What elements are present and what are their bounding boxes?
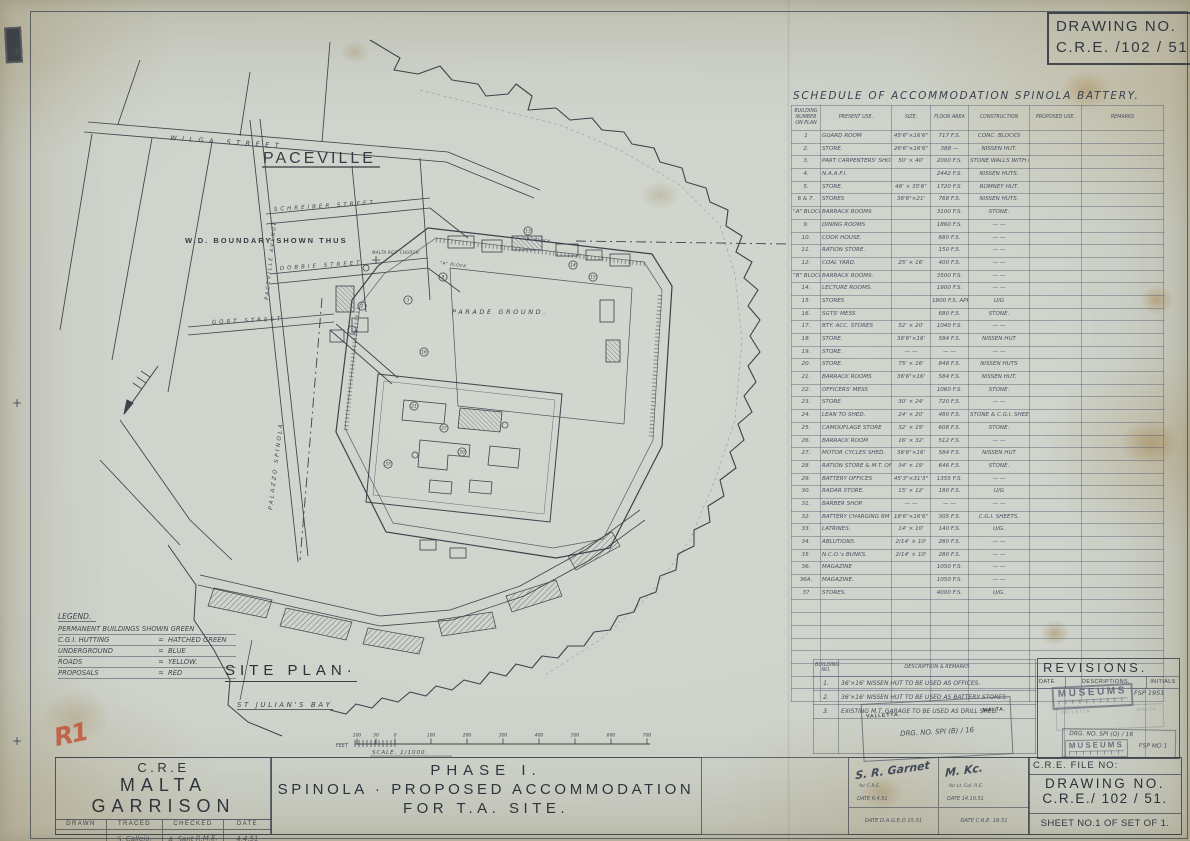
cell: OFFICERS' MESS: [821, 384, 892, 397]
table-row: 35.N.C.O.'s BUNKS.2/14' × 10'280 F.S.— —: [792, 549, 1164, 562]
cell: [1082, 232, 1164, 245]
cell: 3100 F.S.: [931, 207, 969, 220]
drawing-no-title-box: C.R.E. FILE NO: DRAWING NO. C.R.E./ 102 …: [1028, 757, 1182, 835]
table-row: 36A.MAGAZINE.1050 F.S.— —: [792, 575, 1164, 588]
cell: [1082, 169, 1164, 182]
cell: NISSEN HUT.: [969, 143, 1030, 156]
table-row: 14.LECTURE ROOMS.1900 F.S.— —: [792, 283, 1164, 296]
cell: 32' × 19': [892, 422, 931, 435]
cell: "B" BLOCK 13.: [792, 270, 821, 283]
cell: 305 F.S.: [931, 511, 969, 524]
svg-text:0: 0: [394, 733, 397, 739]
cell: [1082, 270, 1164, 283]
cell: 25' × 16': [892, 257, 931, 270]
cell: 14.: [792, 283, 821, 296]
schedule-title: SCHEDULE OF ACCOMMODATION SPINOLA BATTER…: [793, 90, 1163, 102]
stamp-malta: MALTA.: [1137, 706, 1159, 712]
cell: 1720 F.S.: [931, 181, 969, 194]
cell: STORES.: [821, 587, 892, 600]
cre-malta-garrison-box: C.R.E MALTA GARRISON DRAWN TRACEDS. Call…: [55, 757, 272, 835]
cell: 18.: [792, 334, 821, 347]
cell: 50' × 40': [892, 156, 931, 169]
table-row: 11.RATION STORE.150 F.S.— —: [792, 245, 1164, 258]
cell: BARRACK ROOMS: [821, 207, 892, 220]
cell: [1030, 448, 1082, 461]
cell: RATION STORE & M.T. OFF.: [821, 460, 892, 473]
cell: 9.: [792, 219, 821, 232]
cell: STORE.: [821, 359, 892, 372]
cell: — —: [969, 562, 1030, 575]
cell: BATTERY CHARGING RM: [821, 511, 892, 524]
table-row: 34.ABLUTIONS.2/14' × 10'280 F.S.— —: [792, 537, 1164, 550]
cell: NISSEN HUT: [969, 334, 1030, 347]
svg-text:14: 14: [570, 263, 576, 269]
cell: 646 F.S.: [931, 460, 969, 473]
svg-text:400: 400: [535, 733, 544, 739]
table-row: [792, 638, 1164, 651]
stamp-malta: MALTA.: [983, 706, 1007, 713]
cell: C.G.I. SHEETS.: [969, 511, 1030, 524]
cell: 1040 F.S.: [931, 321, 969, 334]
svg-text:1: 1: [351, 328, 354, 334]
cell: 2000 F.S.: [931, 156, 969, 169]
cell: 18'6"×16'6": [892, 511, 931, 524]
cell: STORE.: [821, 181, 892, 194]
cell: N.C.O.'s BUNKS.: [821, 549, 892, 562]
table-row: 15.STORES1800 F.S. APPROX.U/G: [792, 295, 1164, 308]
cell: NISSEN HUTS.: [969, 194, 1030, 207]
title-line-2: SPINOLA · PROPOSED ACCOMMODATION: [271, 781, 701, 798]
table-row: "A" BLOCK 8.BARRACK ROOMS3100 F.S.STONE.: [792, 207, 1164, 220]
table-row: 36.MAGAZINE1050 F.S.— —: [792, 562, 1164, 575]
cell: — —: [931, 346, 969, 359]
cell: 584 F.S.: [931, 448, 969, 461]
column-header: BUILDING NUMBER ON PLAN: [792, 106, 821, 131]
cell: CAMOUFLAGE STORE: [821, 422, 892, 435]
cell: BARRACK ROOMS.: [821, 270, 892, 283]
cell: 32.: [792, 511, 821, 524]
table-row: 18.STORE.36'6"×16'584 F.S.NISSEN HUT: [792, 334, 1164, 347]
svg-text:37: 37: [385, 462, 391, 468]
cell: [1030, 625, 1082, 638]
cell: STONE.: [969, 460, 1030, 473]
map-label-a-block: "A" BLOCK: [440, 260, 468, 269]
cell: 512 F.S.: [931, 435, 969, 448]
stamp-annotation: FSP 1951: [1134, 689, 1164, 697]
cell: [892, 638, 931, 651]
cell: 1050 F.S.: [931, 575, 969, 588]
cell: CONC. BLOCKS: [969, 131, 1030, 144]
cell: [1030, 384, 1082, 397]
cell: [1030, 346, 1082, 359]
map-label-wilga-street: WILGA STREET: [170, 134, 285, 150]
signature: M. Kc.: [945, 761, 983, 780]
cell: [1082, 156, 1164, 169]
drawing-no-label: DRAWING NO.: [1056, 16, 1190, 37]
cell: — —: [969, 321, 1030, 334]
cell: [892, 575, 931, 588]
cell: [969, 600, 1030, 613]
cell: 30' × 24': [892, 397, 931, 410]
drawn-value: [56, 829, 107, 841]
cell: [1082, 587, 1164, 600]
cell: [1030, 524, 1082, 537]
legend-equals: =: [154, 646, 168, 656]
cell: — —: [969, 537, 1030, 550]
sheet-no: SHEET NO.1 OF SET OF 1.: [1029, 814, 1181, 829]
cell: 36A.: [792, 575, 821, 588]
cell: 2.: [814, 691, 839, 705]
legend-item: ROADS=YELLOW.: [58, 657, 236, 668]
drawing-no-block: DRAWING NO. C.R.E./ 102 / 51.: [1029, 776, 1181, 814]
schedule-table: BUILDING NUMBER ON PLANPRESENT USE.SIZE.…: [791, 105, 1164, 702]
table-row: 2.STORE.26'6"×16'6"388 —NISSEN HUT.: [792, 143, 1164, 156]
table-row: 16.SGTS' MESS680 F.S.STONE.: [792, 308, 1164, 321]
cell: [1030, 486, 1082, 499]
cell: U/G.: [969, 587, 1030, 600]
map-label-dobbie-street: DOBBIE STREET: [280, 260, 363, 272]
cell: 36'6"×16': [892, 334, 931, 347]
legend-item: UNDERGROUND=BLUE: [58, 646, 236, 657]
cell: 75' × 16': [892, 359, 931, 372]
cell: [821, 613, 892, 626]
cell: [892, 207, 931, 220]
cell: 1050 F.S.: [931, 562, 969, 575]
cell: 31.: [792, 498, 821, 511]
museums-stamp: MUSEUMS: [1065, 739, 1128, 758]
cell: [1082, 245, 1164, 258]
cell: 1800 F.S. APPROX.: [931, 295, 969, 308]
drawing-no-label: DRAWING NO.: [1029, 776, 1181, 791]
cell: 1355 F.S.: [931, 473, 969, 486]
cell: 717 F.S.: [931, 131, 969, 144]
cell: 23.: [792, 397, 821, 410]
legend-term: PROPOSALS: [58, 668, 154, 678]
table-row: [792, 625, 1164, 638]
cell: 45'3"×31'3": [892, 473, 931, 486]
cell: [1030, 587, 1082, 600]
table-row: [792, 600, 1164, 613]
revisions-col-initials: INITIALS: [1147, 677, 1179, 688]
cell: U/G: [969, 295, 1030, 308]
svg-text:200: 200: [463, 733, 472, 739]
table-row: 29.BATTERY OFFICES45'3"×31'3"1355 F.S.— …: [792, 473, 1164, 486]
svg-text:FEET: FEET: [336, 743, 349, 749]
cell: 33.: [792, 524, 821, 537]
cell: [1030, 372, 1082, 385]
legend-equals: =: [154, 635, 168, 645]
cell: [1082, 537, 1164, 550]
cell: 27.: [792, 448, 821, 461]
table-row: 10.COOK HOUSE.680 F.S.— —: [792, 232, 1164, 245]
cell: [892, 625, 931, 638]
cell: [792, 638, 821, 651]
cell: 2/14' × 10': [892, 537, 931, 550]
cell: — —: [892, 498, 931, 511]
remarks-header-row: BUILDING NO.DESCRIPTION & REMARKS: [814, 660, 1036, 677]
cell: [1030, 232, 1082, 245]
cell: [1030, 295, 1082, 308]
cell: [1082, 283, 1164, 296]
map-label-parade-ground: PARADE GROUND.: [452, 308, 548, 316]
table-row: 3.PART CARPENTERS' SHOP & PART CUBICLES5…: [792, 156, 1164, 169]
table-row: 6 & 7.STORES36'6"×21'768 F.S.NISSEN HUTS…: [792, 194, 1164, 207]
cell: 4.: [792, 169, 821, 182]
legend-value: HATCHED GREEN: [168, 635, 236, 645]
cell: N.A.A.F.I.: [821, 169, 892, 182]
cell: [1030, 562, 1082, 575]
cell: STORE.: [821, 143, 892, 156]
cre-label: C.R.E: [56, 760, 271, 775]
cell: RADAR STORE.: [821, 486, 892, 499]
cell: [892, 270, 931, 283]
cell: 3.: [792, 156, 821, 169]
legend-item: PROPOSALS=RED: [58, 668, 236, 679]
cell: [892, 219, 931, 232]
cell: [1082, 511, 1164, 524]
cell: MAGAZINE.: [821, 575, 892, 588]
cell: [1030, 257, 1082, 270]
cell: [1030, 498, 1082, 511]
site-plan-title: SITE PLAN·: [225, 662, 357, 682]
cell: [814, 719, 839, 754]
cell: NISSEN HUT: [969, 448, 1030, 461]
column-header: DESCRIPTION & REMARKS: [839, 660, 1036, 677]
svg-text:100: 100: [427, 733, 436, 739]
cell: [1030, 270, 1082, 283]
cell: [1082, 131, 1164, 144]
map-label-schreiber-street: SCHREIBER STREET: [274, 200, 376, 213]
cell: — —: [892, 346, 931, 359]
cell: 1060 F.S.: [931, 384, 969, 397]
cell: 16.: [792, 308, 821, 321]
column-header: BUILDING NO.: [814, 660, 839, 677]
table-row: 37STORES.4000 F.S.U/G.: [792, 587, 1164, 600]
cell: [1082, 486, 1164, 499]
cell: [1030, 156, 1082, 169]
cell: MAGAZINE: [821, 562, 892, 575]
cell: [1082, 600, 1164, 613]
cell: STORE.: [821, 346, 892, 359]
table-row: 23.STORE.30' × 24'720 F.S.— —: [792, 397, 1164, 410]
cell: 20.: [792, 359, 821, 372]
drg-no-note: DRG. NO. SPI (B) / 16: [863, 724, 1011, 740]
battery-rampart: [336, 228, 672, 558]
cell: 1: [792, 131, 821, 144]
cell: STONE.: [969, 207, 1030, 220]
cell: [892, 295, 931, 308]
cell: [1082, 498, 1164, 511]
cell: [1030, 143, 1082, 156]
stamp-valletta: VALLETTA.: [1061, 709, 1093, 715]
svg-text:13: 13: [525, 229, 531, 235]
cell: [1030, 308, 1082, 321]
column-header: SIZE.: [892, 106, 931, 131]
svg-text:27: 27: [441, 426, 447, 432]
cell: 34' × 19': [892, 460, 931, 473]
signature: S. R. Garnet: [855, 759, 930, 783]
cell: STONE.: [969, 422, 1030, 435]
cell: 25.: [792, 422, 821, 435]
column-header: CONSTRUCTION: [969, 106, 1030, 131]
cell: 180 F.S.: [931, 486, 969, 499]
bay-label: ST JULIAN'S BAY: [237, 701, 333, 710]
cell: [1082, 384, 1164, 397]
cell: BARBER SHOP.: [821, 498, 892, 511]
cell: 680 F.S.: [931, 308, 969, 321]
table-row: 26.BARRACK ROOM16' × 32'512 F.S.— —: [792, 435, 1164, 448]
cell: 584 F.S.: [931, 372, 969, 385]
signature-note: for C.R.E.: [859, 784, 880, 789]
table-row: 4.N.A.A.F.I.2442 F.S.NISSEN HUTS.: [792, 169, 1164, 182]
cre-file-no: C.R.E. FILE NO:: [1029, 758, 1181, 775]
cell: [931, 600, 969, 613]
cell: — —: [969, 346, 1030, 359]
checked-value: A. Sant R.M.E.: [163, 829, 224, 841]
cell: [1082, 219, 1164, 232]
legend-item: C.G.I. HUTTING=HATCHED GREEN: [58, 635, 236, 646]
cell: 584 F.S.: [931, 334, 969, 347]
svg-text:600: 600: [607, 733, 616, 739]
cell: [892, 169, 931, 182]
cell: — —: [969, 575, 1030, 588]
cell: STORES: [821, 295, 892, 308]
column-header: PROPOSED USE.: [1030, 106, 1082, 131]
schedule-of-accommodation: SCHEDULE OF ACCOMMODATION SPINOLA BATTER…: [791, 90, 1163, 702]
map-label-wd-boundary: W.D. BOUNDARY SHOWN THUS: [185, 236, 348, 245]
svg-text:15: 15: [590, 275, 596, 281]
table-row: [792, 613, 1164, 626]
cell: [1082, 410, 1164, 423]
cell: 26.: [792, 435, 821, 448]
cell: U/G: [969, 486, 1030, 499]
cell: STONE & C.G.I. SHEETS: [969, 410, 1030, 423]
cell: 35.: [792, 549, 821, 562]
cell: — —: [969, 257, 1030, 270]
svg-text:50: 50: [373, 733, 379, 739]
cell: 30.: [792, 486, 821, 499]
cell: 280 F.S.: [931, 549, 969, 562]
cell: [1030, 245, 1082, 258]
cell: LEAN TO SHED.: [821, 410, 892, 423]
legend-value: BLUE: [168, 646, 236, 656]
cell: [892, 245, 931, 258]
cell: [892, 587, 931, 600]
cell: [1030, 359, 1082, 372]
cell: "A" BLOCK 8.: [792, 207, 821, 220]
cell: 768 F.S.: [931, 194, 969, 207]
map-label-paceville-avenue: PACEVILLE AVENUE: [264, 220, 278, 301]
table-row: 20.STORE.75' × 16'848 F.S.NISSEN HUTS: [792, 359, 1164, 372]
cell: 3.: [814, 705, 839, 719]
cell: — —: [969, 397, 1030, 410]
cell: NISSEN HUT.: [969, 372, 1030, 385]
cell: SGTS' MESS: [821, 308, 892, 321]
revisions-title: REVISIONS.: [1038, 659, 1179, 677]
legend-term: PERMANENT BUILDINGS SHOWN GREEN: [58, 624, 194, 634]
cell: [1082, 448, 1164, 461]
cell: 848 F.S.: [931, 359, 969, 372]
legend-term: C.G.I. HUTTING: [58, 635, 154, 645]
revisions-box: REVISIONS. DATE DESCRIPTIONS. INITIALS M…: [1037, 658, 1180, 759]
svg-text:SCALE. 1/1000.: SCALE. 1/1000.: [372, 750, 428, 756]
legend-term: UNDERGROUND: [58, 646, 154, 656]
cell: 12.: [792, 257, 821, 270]
cell: — —: [969, 219, 1030, 232]
drg-no-pencil-box: DRG. NO. SPI (O) / 16 MUSEUMS FSP MO 1: [1062, 728, 1176, 759]
drawing-title-box: PHASE I. SPINOLA · PROPOSED ACCOMMODATIO…: [270, 757, 702, 835]
cell: LATRINES.: [821, 524, 892, 537]
cell: 36'×16' NISSEN HUT TO BE USED AS OFFICES…: [839, 677, 1036, 691]
cell: — —: [969, 498, 1030, 511]
cell: — —: [969, 245, 1030, 258]
cell: 15' × 12': [892, 486, 931, 499]
table-row: 25.CAMOUFLAGE STORE32' × 19'608 F.S.STON…: [792, 422, 1164, 435]
cell: — —: [969, 270, 1030, 283]
cell: ROMNEY HUT.: [969, 181, 1030, 194]
cell: [892, 232, 931, 245]
cell: [1030, 575, 1082, 588]
cell: 52' × 20': [892, 321, 931, 334]
cell: 21.: [792, 372, 821, 385]
cell: 5.: [792, 181, 821, 194]
cell: [1082, 524, 1164, 537]
cell: — —: [969, 435, 1030, 448]
map-label-church-note: MALTA RGT. CHURCH: [372, 250, 419, 255]
cell: — —: [969, 549, 1030, 562]
date-value: 4.4.51: [224, 829, 272, 841]
cell: 36.: [792, 562, 821, 575]
cell: [1082, 359, 1164, 372]
cell: [1082, 321, 1164, 334]
cell: 36'6"×21': [892, 194, 931, 207]
cell: — —: [969, 232, 1030, 245]
cell: 2/14' × 10': [892, 549, 931, 562]
cell: 2.: [792, 143, 821, 156]
cell: 15.: [792, 295, 821, 308]
cell: PART CARPENTERS' SHOP & PART CUBICLES: [821, 156, 892, 169]
table-row: 1GUARD ROOM45'6"×16'6"717 F.S.CONC. BLOC…: [792, 131, 1164, 144]
svg-text:16: 16: [421, 350, 427, 356]
stamp-valletta: VALLETTA.: [866, 712, 901, 720]
cell: 24.: [792, 410, 821, 423]
cell: RATION STORE.: [821, 245, 892, 258]
cell: 29.: [792, 473, 821, 486]
drawing-no-value: C.R.E./ 102 / 51.: [1029, 791, 1181, 806]
signature-cell: S. R. Garnet for C.R.E. DATE 6.4.51: [849, 758, 939, 808]
department-stamp: VALLETTA. MALTA.: [1056, 703, 1165, 731]
cell: [1030, 194, 1082, 207]
svg-text:300: 300: [499, 733, 508, 739]
cell: [931, 638, 969, 651]
cell: STORE.: [821, 397, 892, 410]
cell: [1030, 549, 1082, 562]
cell: STORES: [821, 194, 892, 207]
cell: [1030, 600, 1082, 613]
cell: 16' × 32': [892, 435, 931, 448]
cell: [1030, 219, 1082, 232]
cell: [1030, 511, 1082, 524]
cell: [1030, 537, 1082, 550]
cell: 720 F.S.: [931, 397, 969, 410]
cell: [1082, 625, 1164, 638]
cell: MOTOR CYCLES SHED.: [821, 448, 892, 461]
cell: [892, 562, 931, 575]
cell: COAL YARD.: [821, 257, 892, 270]
cell: [1082, 435, 1164, 448]
table-row: 31.BARBER SHOP.— —— —— —: [792, 498, 1164, 511]
table-row: 32.BATTERY CHARGING RM18'6"×16'6"305 F.S…: [792, 511, 1164, 524]
